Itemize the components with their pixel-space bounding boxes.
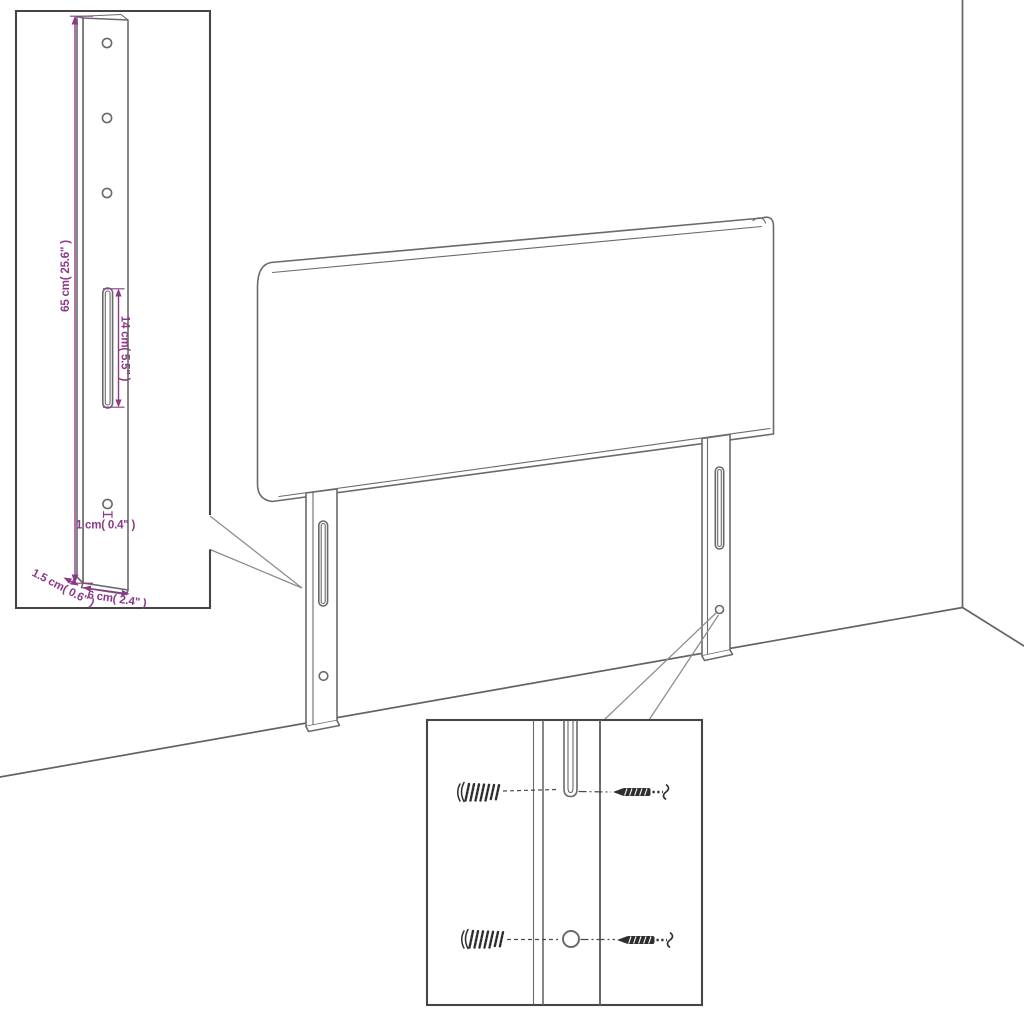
right-leg-hole [716, 606, 724, 614]
bracket-hole-2 [102, 113, 111, 122]
bracket-detail-inset: 65 cm( 25.6" ) 14 cm( 5.5" ) 1 cm( 0.4" … [16, 11, 210, 610]
headboard-panel [258, 217, 774, 501]
right-leg-slot [715, 467, 723, 549]
bracket-bottom-hole [103, 499, 112, 508]
hardware-detail-inset [427, 720, 702, 1005]
diagram-stage: 65 cm( 25.6" ) 14 cm( 5.5" ) 1 cm( 0.4" … [0, 0, 1024, 1024]
leg-closeup-hole [563, 931, 579, 947]
headboard-dimension-diagram: 65 cm( 25.6" ) 14 cm( 5.5" ) 1 cm( 0.4" … [0, 0, 1024, 1024]
dimension-slot-label: 14 cm( 5.5" ) [119, 316, 131, 382]
left-mounting-leg [306, 489, 340, 732]
right-mounting-leg [702, 435, 733, 661]
dimension-hole-label: 1 cm( 0.4" ) [76, 520, 136, 532]
bracket-hole-1 [102, 38, 111, 47]
bracket-hole-3 [102, 188, 111, 197]
bracket-side-face [77, 17, 83, 584]
bracket-drawing [77, 15, 128, 595]
dimension-height-label: 65 cm( 25.6" ) [60, 240, 72, 312]
left-leg-hole [319, 672, 328, 681]
headboard-outline [258, 217, 774, 501]
left-leg-slot [319, 521, 328, 606]
floor-line-right [963, 608, 1024, 647]
bracket-inset-leader [210, 516, 302, 588]
bracket-slot [103, 288, 113, 408]
screw-leader-top [579, 792, 612, 793]
